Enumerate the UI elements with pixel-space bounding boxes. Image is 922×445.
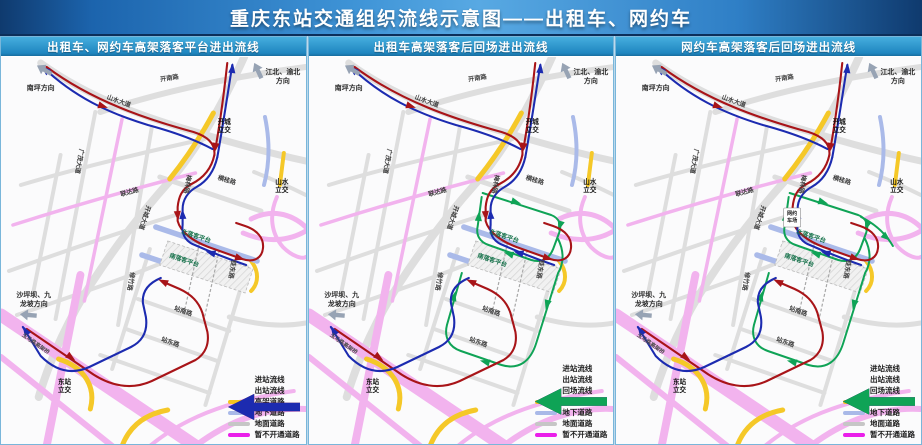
road-segment [580, 197, 614, 258]
legend: 进站流线出站流线回场流线高架道路地下道路地面道路暂不开通道路 [843, 364, 915, 439]
flow-arrow-symbol [843, 386, 865, 395]
title-bar: 重庆东站交通组织流线示意图——出租车、网约车 [0, 0, 922, 36]
flow-line-inbound [334, 283, 515, 386]
map-label: 站东路 [776, 334, 797, 349]
road-segment [272, 197, 306, 258]
flow-arrow-icon [843, 364, 915, 439]
map-label: 站东路 [468, 334, 489, 349]
map-label: 江北、渝北 [265, 67, 300, 76]
road-segment [229, 317, 305, 325]
map-label: 立交 [366, 385, 380, 394]
panel-ridehail-return: 网约车高架落客后回场进出流线南坪方向江北、渝北方向沙坪坝、九龙坡方向开南路山水大… [615, 36, 922, 445]
map-label: 立交 [525, 125, 539, 134]
map-label: 开城 [525, 117, 539, 126]
map-area: 南坪方向江北、渝北方向沙坪坝、九龙坡方向开南路山水大道开城立交广茂大道联达路开城… [616, 57, 921, 444]
map-label: 南坪方向 [334, 83, 362, 92]
flow-line-inbound [642, 283, 823, 386]
road-segment [251, 213, 306, 227]
panel-header-title: 出租车、网约车高架落客平台进出流线 [47, 39, 260, 55]
page-title: 重庆东站交通组织流线示意图——出租车、网约车 [230, 4, 692, 31]
map-label: 方向 [276, 76, 290, 85]
map-area: 南坪方向江北、渝北方向沙坪坝、九龙坡方向开南路山水大道开城立交广茂大道联达路开城… [1, 57, 306, 444]
flow-arrow-symbol [228, 386, 250, 395]
map-label: 山水 [275, 177, 289, 186]
map-label: 江北、渝北 [881, 67, 916, 76]
map-label: 立交 [218, 125, 232, 134]
map-label: 立交 [275, 185, 289, 194]
road-segment [160, 177, 261, 211]
map-label: 沙坪坝、九 [324, 290, 359, 299]
road-segment [845, 317, 921, 325]
panel-header: 网约车高架落客后回场进出流线 [616, 37, 921, 57]
map-label: 东站 [58, 377, 72, 386]
map-label: 开南路 [467, 71, 488, 83]
map-label: 开南路 [159, 71, 180, 83]
ride-hailing-lot-label: 车场 [787, 216, 797, 224]
panel-header-title: 出租车高架落客后回场进出流线 [374, 39, 549, 55]
road-segment [887, 197, 921, 258]
map-label: 联达路 [735, 185, 756, 199]
legend-row: 回场流线 [843, 386, 915, 395]
map-label: 山水 [891, 177, 905, 186]
map-label: 山水 [583, 177, 597, 186]
flow-arrow-icon [228, 375, 300, 439]
map-label: 联达路 [427, 185, 448, 199]
panel-header: 出租车、网约车高架落客平台进出流线 [1, 37, 306, 57]
panels-row: 出租车、网约车高架落客平台进出流线南坪方向江北、渝北方向沙坪坝、九龙坡方向开南路… [0, 36, 922, 445]
map-label: 立交 [583, 185, 597, 194]
map-label: 横桂路 [217, 173, 238, 187]
map-label: 龙坡方向 [634, 299, 663, 308]
map-label: 江北、渝北 [573, 67, 608, 76]
legend: 进站流线出站流线回场流线高架道路地下道路地面道路暂不开通道路 [535, 364, 607, 439]
legend: 进站流线出站流线高架道路地下道路地面道路暂不开通道路 [228, 375, 300, 439]
map-area: 南坪方向江北、渝北方向沙坪坝、九龙坡方向开南路山水大道开城立交广茂大道联达路开城… [309, 57, 614, 444]
flow-arrow-symbol [535, 386, 557, 395]
road-segment [537, 317, 613, 325]
map-label: 龙坡方向 [327, 299, 356, 308]
flow-arrow-icon [535, 364, 607, 439]
map-label: 联达路 [119, 185, 140, 199]
map-label: 南坪方向 [642, 83, 670, 92]
road-segment [251, 261, 257, 291]
panel-taxi-return: 出租车高架落客后回场进出流线南坪方向江北、渝北方向沙坪坝、九龙坡方向开南路山水大… [308, 36, 615, 445]
map-label: 横桂路 [832, 173, 853, 187]
map-label: 立交 [673, 385, 687, 394]
station-building [467, 241, 560, 293]
map-label: 方向 [891, 76, 905, 85]
map-label: 沙坪坝、九 [16, 290, 51, 299]
panel-taxi-ridehail-platform: 出租车、网约车高架落客平台进出流线南坪方向江北、渝北方向沙坪坝、九龙坡方向开南路… [0, 36, 307, 445]
map-label: 龙坡方向 [19, 299, 48, 308]
legend-row: 回场流线 [535, 386, 607, 395]
map-label: 开城 [833, 117, 847, 126]
station-building [160, 241, 253, 293]
map-label: 立交 [891, 185, 905, 194]
road-segment [559, 213, 614, 227]
map-label: 站东路 [160, 334, 181, 349]
flow-line-inbound [27, 283, 208, 386]
panel-header-title: 网约车高架落客后回场进出流线 [681, 39, 856, 55]
panel-header: 出租车高架落客后回场进出流线 [309, 37, 614, 57]
map-label: 立交 [833, 125, 847, 134]
map-label: 沙坪坝、九 [632, 290, 667, 299]
map-label: 立交 [58, 385, 72, 394]
map-label: 横桂路 [524, 173, 545, 187]
ride-hailing-lot-label: 网约 [787, 209, 797, 217]
legend-row: 出站流线 [228, 386, 300, 395]
traffic-flow-poster: 重庆东站交通组织流线示意图——出租车、网约车 出租车、网约车高架落客平台进出流线… [0, 0, 922, 445]
map-label: 开南路 [775, 71, 796, 83]
map-label: 东站 [673, 377, 687, 386]
map-label: 南坪方向 [27, 83, 55, 92]
station-building [775, 241, 868, 293]
map-label: 东站 [366, 377, 380, 386]
map-label: 方向 [584, 76, 598, 85]
map-label: 开城 [218, 117, 232, 126]
